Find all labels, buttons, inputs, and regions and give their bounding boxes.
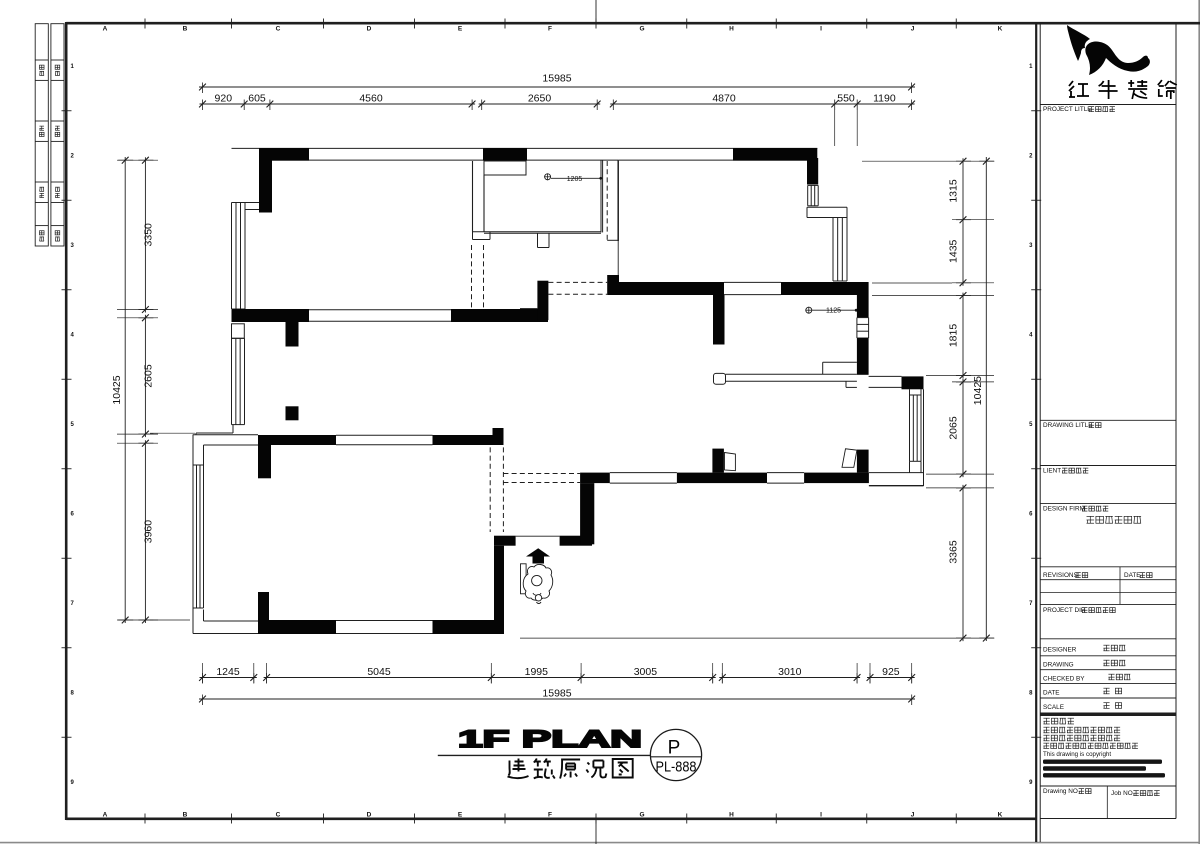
svg-text:D: D [367,26,372,33]
svg-text:15985: 15985 [542,688,571,700]
svg-text:1995: 1995 [525,666,549,678]
svg-text:1245: 1245 [216,666,240,678]
svg-text:DESIGN FIRM: DESIGN FIRM [1043,506,1085,513]
svg-text:This drawing is copyright: This drawing is copyright [1043,751,1111,758]
svg-text:925: 925 [882,666,900,678]
svg-text:LIENT: LIENT [1043,468,1061,475]
svg-text:K: K [998,26,1003,33]
svg-text:C: C [276,26,281,33]
svg-text:2650: 2650 [528,92,552,104]
svg-text:DRAWING: DRAWING [1043,662,1074,669]
svg-text:10425: 10425 [972,376,984,405]
svg-text:550: 550 [837,92,855,104]
svg-text:I: I [820,812,822,819]
svg-text:SCALE: SCALE [1043,704,1064,711]
svg-text:G: G [639,26,644,33]
svg-text:F: F [548,26,552,33]
svg-text:B: B [183,812,188,819]
svg-text:DESIGNER: DESIGNER [1043,647,1077,654]
svg-text:J: J [911,26,915,33]
svg-text:605: 605 [248,92,266,104]
svg-text:PROJECT LITLE: PROJECT LITLE [1043,106,1092,113]
svg-text:C: C [276,812,281,819]
svg-text:E: E [458,812,463,819]
svg-text:DRAWING LITLE: DRAWING LITLE [1043,422,1092,429]
svg-text:3005: 3005 [634,666,658,678]
svg-text:3365: 3365 [948,540,960,564]
svg-text:1205: 1205 [567,176,583,183]
svg-text:2065: 2065 [948,416,960,440]
svg-text:B: B [183,26,188,33]
svg-text:CHECKED BY: CHECKED BY [1043,676,1085,683]
svg-text:A: A [103,812,108,819]
svg-text:Job NO: Job NO [1111,790,1133,797]
svg-text:PROJECT DIR: PROJECT DIR [1043,607,1086,614]
svg-text:D: D [367,812,372,819]
svg-text:15985: 15985 [542,73,571,85]
svg-text:1315: 1315 [948,179,960,203]
svg-text:1F PLAN: 1F PLAN [458,726,642,753]
svg-text:K: K [998,812,1003,819]
svg-text:H: H [729,26,734,33]
svg-text:3010: 3010 [778,666,802,678]
svg-text:G: G [639,812,644,819]
svg-text:4870: 4870 [712,92,736,104]
svg-text:3350: 3350 [143,223,155,247]
svg-text:1435: 1435 [948,239,960,263]
svg-text:5045: 5045 [367,666,391,678]
svg-text:DATE: DATE [1043,690,1060,697]
svg-text:J: J [911,812,915,819]
svg-text:REVISIONS: REVISIONS [1043,572,1078,579]
svg-text:1815: 1815 [948,324,960,348]
svg-text:H: H [729,812,734,819]
svg-text:1190: 1190 [873,92,896,104]
svg-text:P: P [668,738,681,759]
svg-text:920: 920 [215,92,233,104]
svg-text:2605: 2605 [143,364,155,388]
svg-text:10425: 10425 [111,375,123,404]
svg-text:E: E [458,26,463,33]
svg-text:3960: 3960 [143,520,155,544]
svg-text:PL-888: PL-888 [656,760,697,776]
svg-text:1125: 1125 [826,308,841,315]
svg-text:Drawing NO: Drawing NO [1043,788,1078,795]
svg-text:DATE: DATE [1124,572,1141,579]
svg-text:4560: 4560 [359,92,383,104]
svg-text:A: A [103,26,108,33]
svg-text:F: F [548,812,552,819]
svg-text:I: I [820,26,822,33]
